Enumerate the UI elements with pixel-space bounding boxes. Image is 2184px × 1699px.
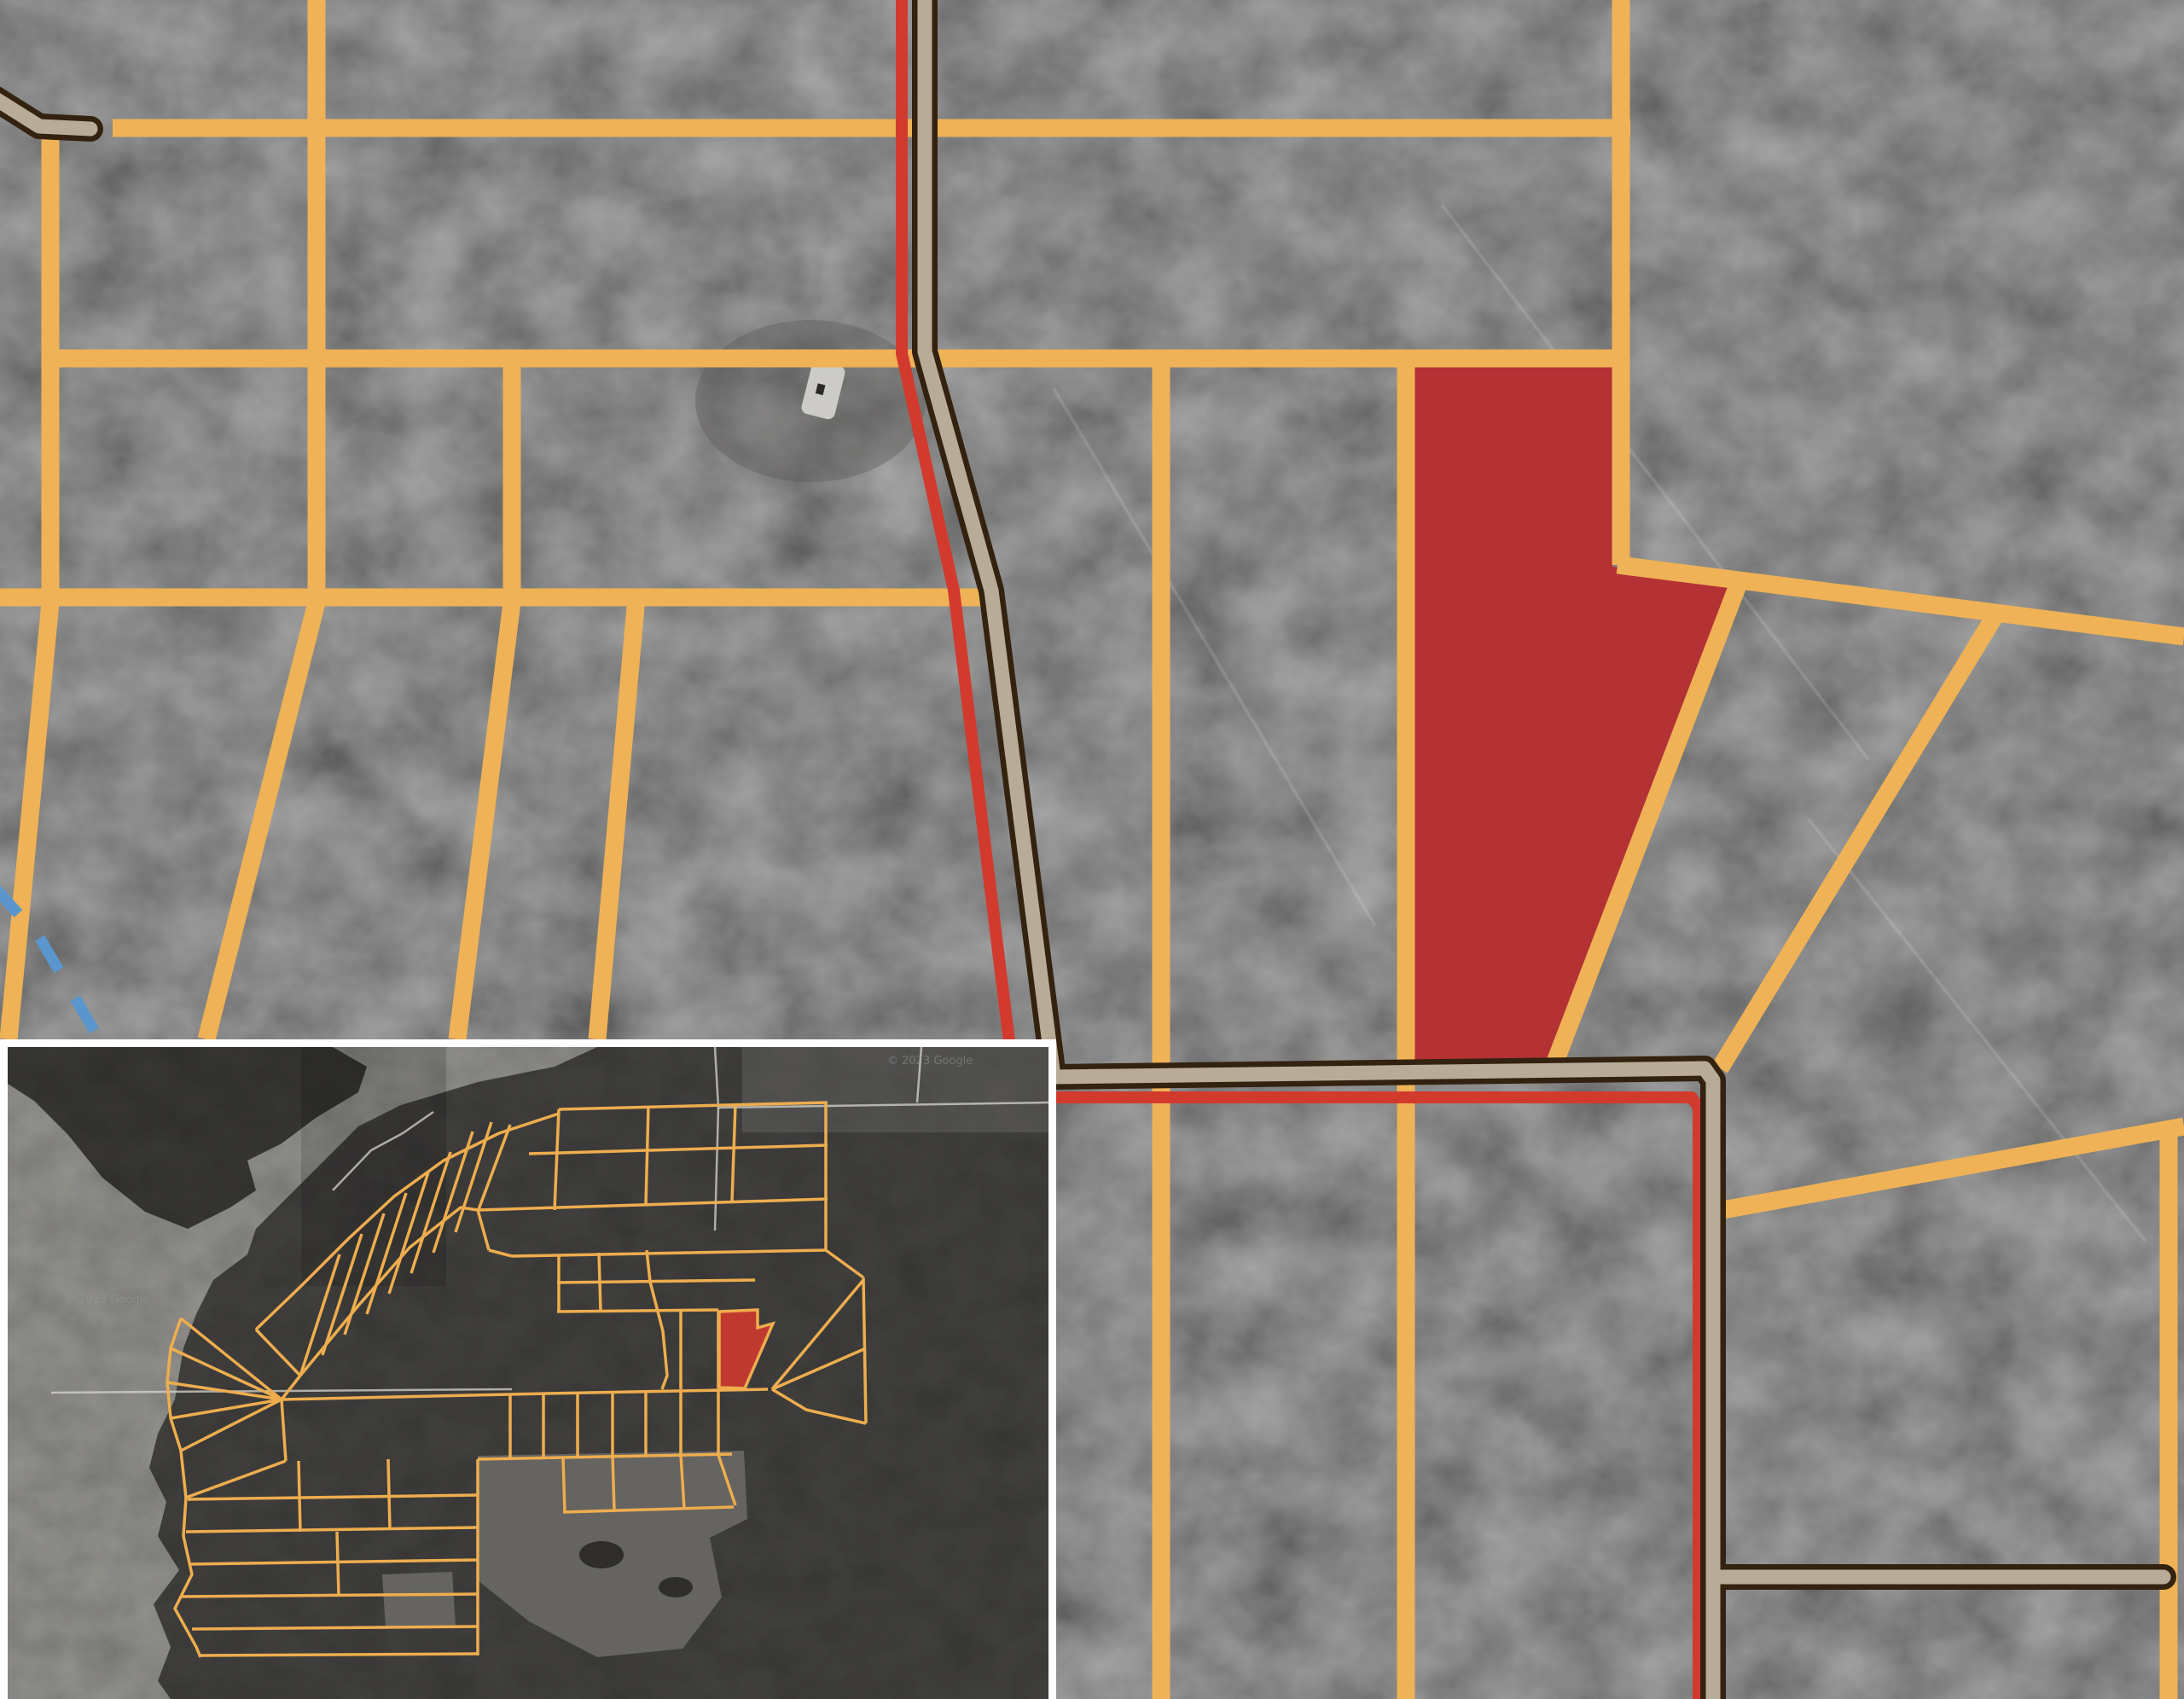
inset-watermark: © 2023 Google bbox=[64, 1294, 149, 1306]
inset-parcel-line bbox=[557, 1310, 718, 1312]
inset-parcel-line bbox=[563, 1458, 565, 1512]
map-viewport[interactable]: © 2023 Google© 2023 Google bbox=[0, 0, 2184, 1699]
inset-imagery-seam bbox=[301, 1047, 446, 1286]
inset-overview-map[interactable]: © 2023 Google© 2023 Google bbox=[4, 1044, 1053, 1699]
inset-parcel-line bbox=[337, 1532, 339, 1596]
inset-parcel-line bbox=[599, 1253, 601, 1311]
inset-content: © 2023 Google© 2023 Google bbox=[8, 1047, 1048, 1699]
inset-parcel-line bbox=[388, 1459, 390, 1530]
inset-pond bbox=[579, 1541, 624, 1568]
inset-parcel-line bbox=[200, 1654, 478, 1655]
inset-parcel-line bbox=[613, 1456, 614, 1510]
inset-watermark: © 2023 Google bbox=[887, 1055, 973, 1068]
inset-parcel-line bbox=[299, 1461, 300, 1532]
inset-field bbox=[382, 1572, 456, 1628]
inset-pond bbox=[659, 1577, 693, 1597]
parcel-map-canvas: © 2023 Google© 2023 Google bbox=[0, 0, 2184, 1699]
